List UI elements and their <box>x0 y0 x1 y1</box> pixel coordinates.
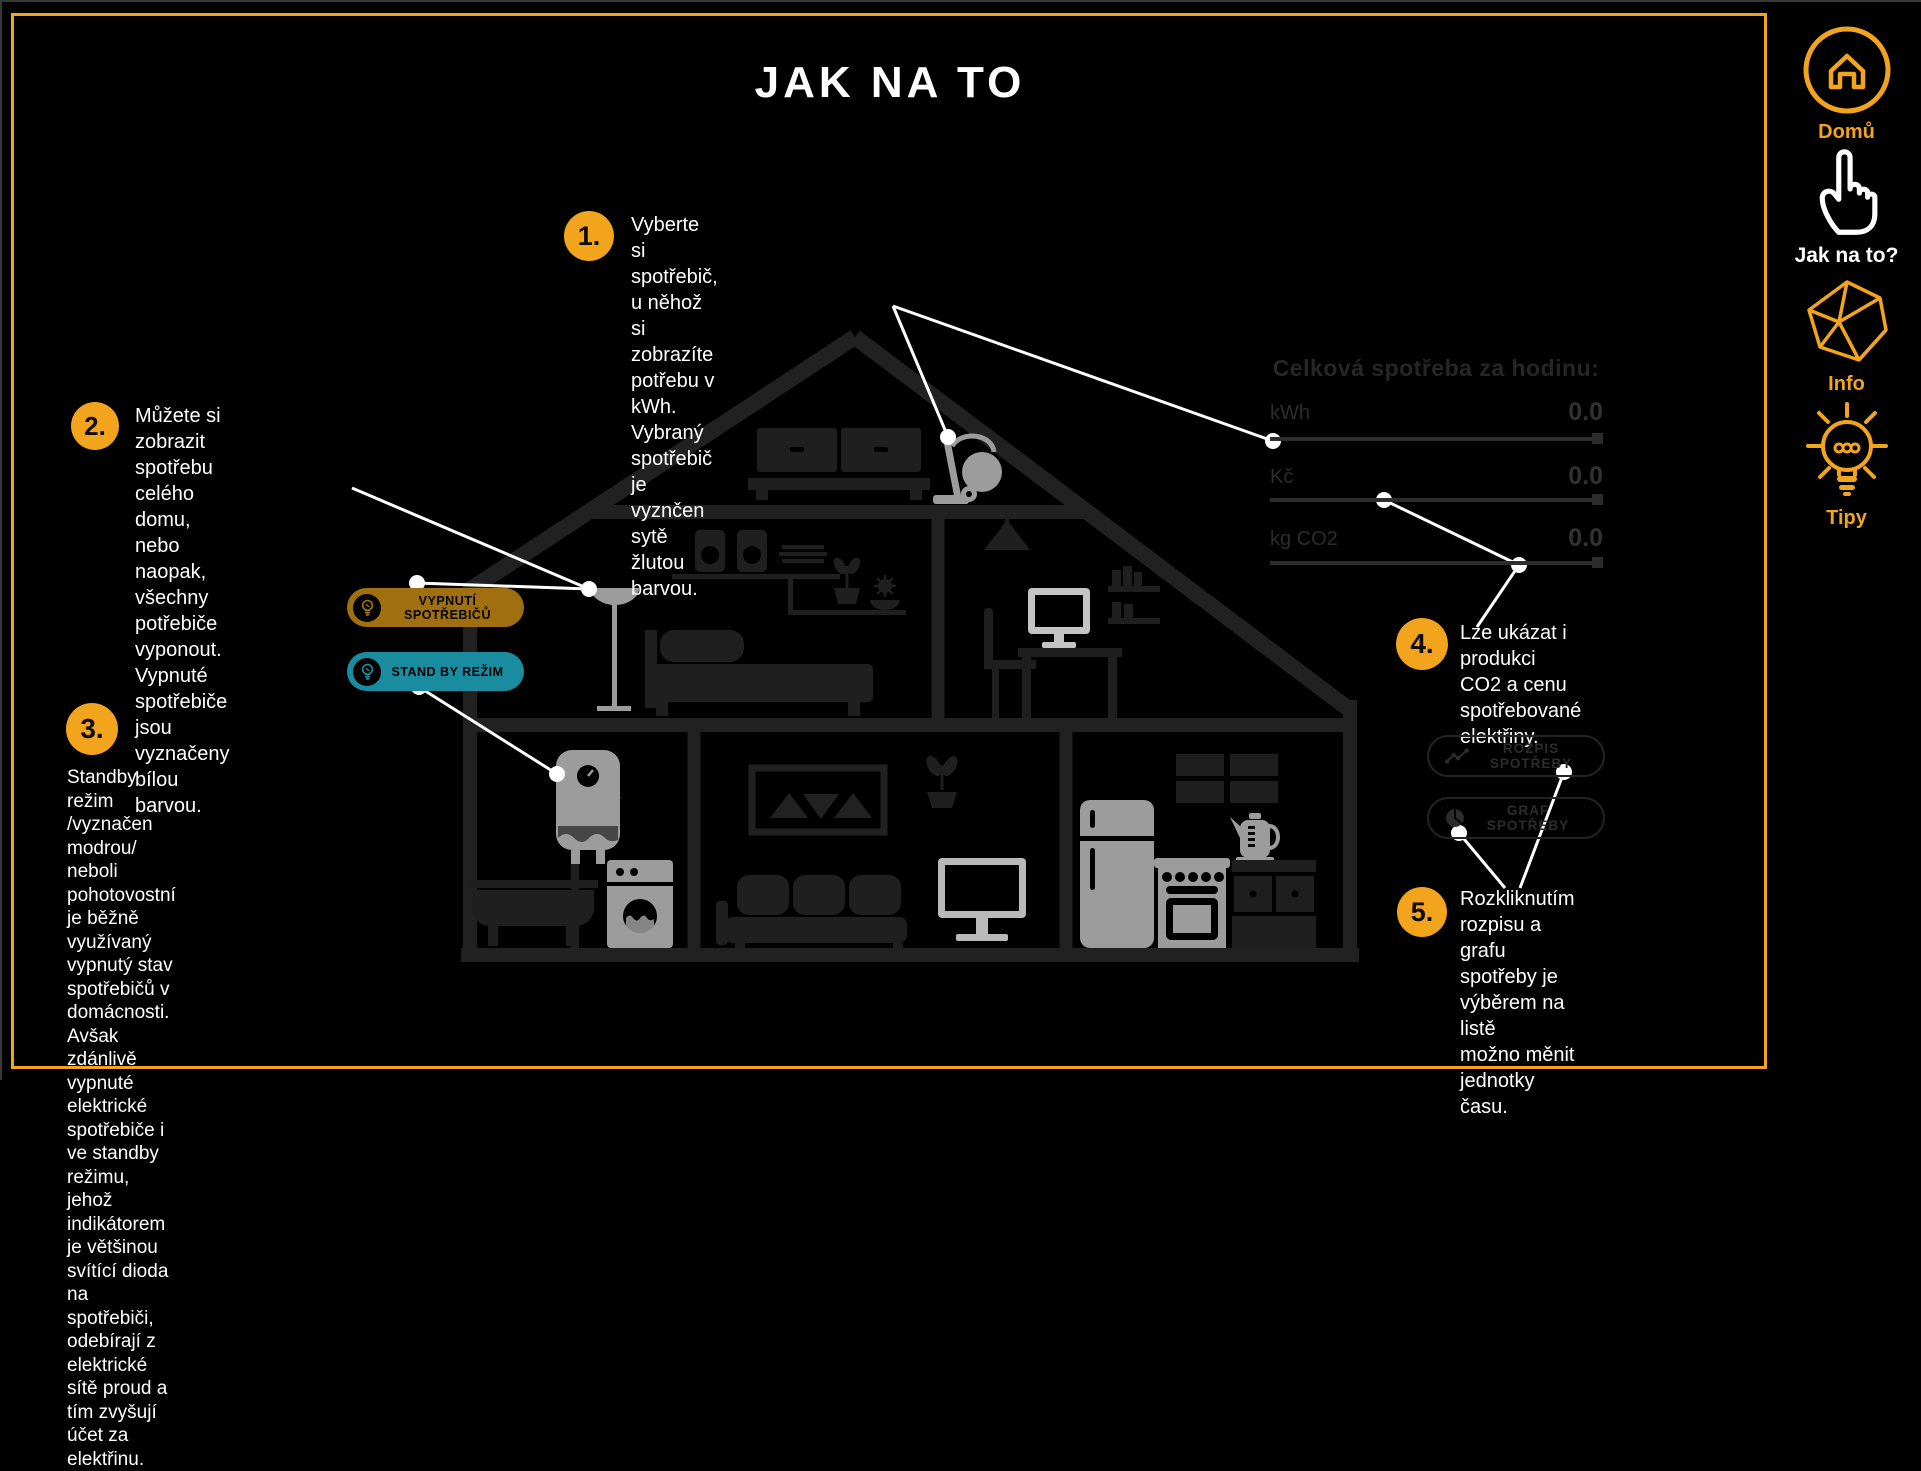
button-label: GRAF SPOTŘEBY <box>1465 803 1591 833</box>
standby-rezim-button[interactable]: STAND BY REŽIM <box>347 652 524 691</box>
sidebar-item-label: Domů <box>1772 121 1921 144</box>
step-text: Rozkliknutím rozpisu a grafu spotřeby je… <box>1460 886 1574 1120</box>
step-number-badge: 1. <box>564 211 614 261</box>
lightbulb-icon <box>1795 489 1899 506</box>
co2-label: kg CO2 <box>1270 528 1338 551</box>
hand-pointer-icon <box>1814 226 1880 243</box>
kc-label: Kč <box>1270 466 1293 489</box>
kwh-label: kWh <box>1270 402 1310 425</box>
connector-lines <box>0 0 1921 1080</box>
sidebar-item-jak-na-to[interactable]: Jak na to? <box>1772 143 1921 268</box>
sidebar-item-domu[interactable]: Domů <box>1772 24 1921 144</box>
graf-spotreby-button[interactable]: GRAF SPOTŘEBY <box>1427 797 1605 839</box>
pie-chart-icon <box>1445 808 1465 828</box>
step-number-badge: 3. <box>66 703 118 755</box>
sidebar-item-label: Tipy <box>1772 507 1921 530</box>
bulb-badge-icon <box>353 594 381 622</box>
kc-slider <box>1270 498 1596 502</box>
kc-value: 0.0 <box>1483 462 1603 491</box>
button-label: ROZPIS SPOTŘEBY <box>1471 741 1591 771</box>
kwh-value: 0.0 <box>1483 398 1603 427</box>
sidebar-item-tipy[interactable]: Tipy <box>1772 396 1921 530</box>
kwh-slider <box>1270 437 1596 441</box>
panel-title: Celková spotřeba za hodinu: <box>1262 355 1610 382</box>
step-text: Můžete si zobrazit spotřebu celého domu,… <box>135 403 230 819</box>
line-chart-icon <box>1445 747 1471 765</box>
app-window: JAK NA TO <box>0 0 1921 1080</box>
kwh-slider-cap <box>1592 433 1603 444</box>
step-text: Standby režim /vyznačen modrou/ neboli p… <box>67 766 176 1471</box>
rozpis-spotreby-button[interactable]: ROZPIS SPOTŘEBY <box>1427 735 1605 777</box>
vypnuti-spotrebicu-button[interactable]: VYPNUTÍ SPOTŘEBIČŮ <box>347 588 524 627</box>
kc-slider-cap <box>1592 494 1603 505</box>
co2-slider-cap <box>1592 557 1603 568</box>
sidebar-item-info[interactable]: Info <box>1772 278 1921 396</box>
step-number-badge: 2. <box>71 402 119 450</box>
co2-value: 0.0 <box>1483 524 1603 553</box>
step-text: Lze ukázat i produkci CO2 a cenu spotřeb… <box>1460 620 1581 750</box>
bulb-badge-icon <box>353 658 381 686</box>
sidebar-item-label: Info <box>1772 373 1921 396</box>
button-label: STAND BY REŽIM <box>381 665 514 679</box>
polyhedron-icon <box>1801 355 1893 372</box>
step-number-badge: 5. <box>1397 887 1447 937</box>
home-icon <box>1801 103 1893 120</box>
step-text: Vyberte si spotřebič, u něhož si zobrazí… <box>631 212 718 602</box>
step-number-badge: 4. <box>1396 618 1448 670</box>
sidebar-item-label: Jak na to? <box>1772 244 1921 268</box>
co2-slider <box>1270 561 1596 565</box>
button-label: VYPNUTÍ SPOTŘEBIČŮ <box>381 594 514 622</box>
